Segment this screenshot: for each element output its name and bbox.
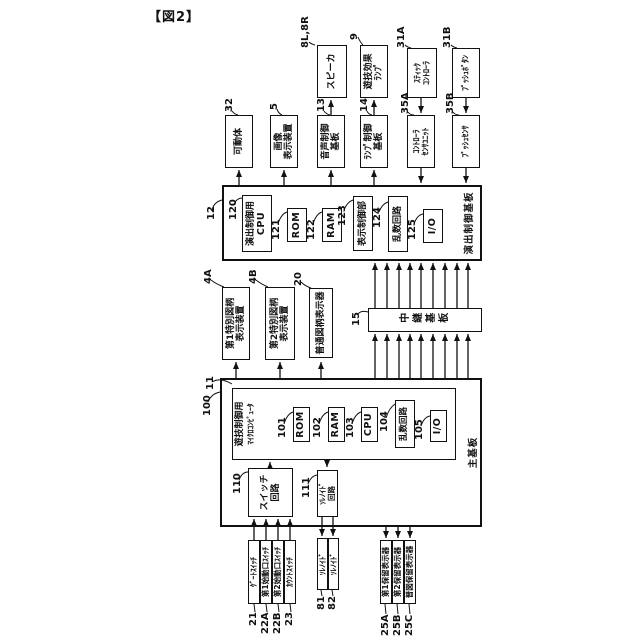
ref-32: 32 <box>224 98 235 112</box>
stick-controller-line2: ｺﾝﾄﾛｰﾗ <box>422 61 431 85</box>
normal-hold-display-label: 普図保留表示器 <box>406 546 414 599</box>
ref-111: 111 <box>301 477 312 498</box>
ref-23: 23 <box>284 612 295 626</box>
normal-hold-display-box: 普図保留表示器 <box>404 540 416 604</box>
start1-switch-label: 第1始動口ｽｲｯﾁ <box>262 547 270 597</box>
ref-101: 101 <box>277 417 288 438</box>
push-button-box: ﾌﾟｯｼｭﾎﾞﾀﾝ <box>452 48 480 98</box>
ref-22B: 22B <box>272 612 283 634</box>
ref-105: 105 <box>414 419 425 440</box>
controller-sensor-line2: ｾﾝｻﾕﾆｯﾄ <box>421 128 430 156</box>
main-ram-box: RAM <box>328 407 345 442</box>
main-io-box: I/O <box>430 410 447 442</box>
game-microcomputer-line2: ﾏｲｸﾛｺﾝﾋﾟｭｰﾀ <box>246 391 255 457</box>
movable-body-box: 可動体 <box>225 115 253 168</box>
ref-4A: 4A <box>203 269 214 284</box>
image-display-box: 画像 表示装置 <box>270 115 298 168</box>
image-display-line1: 画像 <box>274 133 284 151</box>
main-random-box: 乱数回路 <box>395 400 415 448</box>
effect-control-board-label: 演出制御基板 <box>461 185 475 261</box>
ref-103: 103 <box>345 417 356 438</box>
game-microcomputer-label: 遊技制御用 ﾏｲｸﾛｺﾝﾋﾟｭｰﾀ <box>235 391 255 457</box>
ref-120: 120 <box>228 199 239 220</box>
ref-20: 20 <box>293 272 304 286</box>
display-control-label: 表示制御部 <box>358 201 368 246</box>
controller-sensor-unit-box: ｺﾝﾄﾛｰﾗ ｾﾝｻﾕﾆｯﾄ <box>407 115 435 168</box>
ref-25A: 25A <box>380 614 391 636</box>
controller-sensor-line1: ｺﾝﾄﾛｰﾗ <box>412 130 421 154</box>
ref-100: 100 <box>202 395 213 416</box>
special1-line2: 表示装置 <box>236 306 246 342</box>
ref-123: 123 <box>337 205 348 226</box>
ref-22A: 22A <box>260 612 271 634</box>
effect-ram-label: RAM <box>327 212 338 238</box>
effect-lamp-line1: 遊技効果 <box>364 54 374 90</box>
rotated-diagram: 演出制御基板 主基板 遊技制御用 ﾏｲｸﾛｺﾝﾋﾟｭｰﾀ 中継基板 スピーカ 遊… <box>0 0 640 640</box>
push-button-label: ﾌﾟｯｼｭﾎﾞﾀﾝ <box>461 55 470 91</box>
main-cpu-label: CPU <box>364 413 375 436</box>
start1-switch-box: 第1始動口ｽｲｯﾁ <box>260 540 272 604</box>
special2-display-box: 第2特別図柄 表示装置 <box>265 287 295 360</box>
normal-symbol-display-label: 普通図柄表示器 <box>316 292 326 355</box>
ref-121: 121 <box>271 219 282 240</box>
ref-125: 125 <box>407 219 418 240</box>
audio-control-line1: 音声制御 <box>321 124 331 160</box>
speaker-label: スピーカ <box>327 54 337 90</box>
ref-35A: 35A <box>400 92 411 114</box>
main-ram-label: RAM <box>331 412 342 438</box>
hold2-display-box: 第2保留表示器 <box>392 540 404 604</box>
hold1-display-label: 第1保留表示器 <box>382 547 390 597</box>
switch-circuit-line1: スイッチ <box>260 475 270 511</box>
ref-25B: 25B <box>392 614 403 636</box>
push-sensor-box: ﾌﾟｯｼｭｾﾝｻ <box>452 115 480 168</box>
effect-rom-label: ROM <box>292 212 303 238</box>
lamp-control-line2: 基板 <box>374 133 384 151</box>
ref-14: 14 <box>359 98 370 112</box>
audio-control-line2: 基板 <box>331 133 341 151</box>
hold2-display-label: 第2保留表示器 <box>394 547 402 597</box>
ref-102: 102 <box>312 417 323 438</box>
special2-line1: 第2特別図柄 <box>270 298 280 349</box>
normal-symbol-display-box: 普通図柄表示器 <box>309 288 333 358</box>
ref-12: 12 <box>206 206 217 220</box>
solenoid-circuit-line2: 回路 <box>328 486 337 501</box>
speaker-box: スピーカ <box>317 45 347 98</box>
gate-switch-box: ｹﾞｰﾄｽｲｯﾁ <box>248 540 260 604</box>
main-rom-label: ROM <box>296 411 307 437</box>
gate-switch-label: ｹﾞｰﾄｽｲｯﾁ <box>250 557 258 587</box>
relay-board-box: 中継基板 <box>368 308 482 332</box>
effect-cpu-box: 演出制御用 CPU <box>242 195 272 252</box>
special2-line2: 表示装置 <box>280 306 290 342</box>
ref-21: 21 <box>248 612 259 626</box>
effect-random-box: 乱数回路 <box>388 196 408 252</box>
effect-io-label: I/O <box>428 218 439 235</box>
ref-31B: 31B <box>442 26 453 48</box>
effect-lamp-line2: ﾗﾝﾌﾟ <box>374 63 384 81</box>
effect-random-label: 乱数回路 <box>393 206 403 242</box>
ref-9: 9 <box>349 33 360 40</box>
special1-line1: 第1特別図柄 <box>226 298 236 349</box>
switch-circuit-line2: 回路 <box>271 484 281 502</box>
image-display-line2: 表示装置 <box>284 124 294 160</box>
switch-circuit-box: スイッチ 回路 <box>248 468 293 517</box>
special1-display-box: 第1特別図柄 表示装置 <box>222 287 250 360</box>
main-random-label: 乱数回路 <box>400 407 410 441</box>
main-io-label: I/O <box>433 418 444 435</box>
effect-lamp-box: 遊技効果 ﾗﾝﾌﾟ <box>360 45 388 98</box>
ref-81: 81 <box>316 596 327 610</box>
lamp-control-line1: ﾗﾝﾌﾟ制御 <box>364 124 374 160</box>
ref-122: 122 <box>306 219 317 240</box>
ref-124: 124 <box>372 207 383 228</box>
stick-controller-line1: ｽﾃｨｯｸ <box>413 63 422 83</box>
main-rom-box: ROM <box>293 407 310 442</box>
lamp-control-board-box: ﾗﾝﾌﾟ制御 基板 <box>360 115 388 168</box>
relay-board-label: 中継基板 <box>399 314 451 326</box>
ref-15: 15 <box>351 312 362 326</box>
effect-cpu-line2: CPU <box>257 212 268 235</box>
ref-8L8R: 8L,8R <box>300 16 311 48</box>
main-cpu-box: CPU <box>361 407 378 442</box>
display-control-box: 表示制御部 <box>353 196 373 251</box>
ref-110: 110 <box>232 473 243 494</box>
patent-figure: 【図2】 演出制御基板 主基板 遊技制御用 ﾏｲｸﾛｺﾝﾋﾟｭｰﾀ 中継基板 ス… <box>0 0 640 640</box>
ref-25C: 25C <box>404 615 415 636</box>
ref-104: 104 <box>379 411 390 432</box>
ref-35B: 35B <box>445 92 456 114</box>
game-microcomputer-line1: 遊技制御用 <box>235 391 246 457</box>
solenoid81-box: ｿﾚﾉｲﾄﾞ <box>317 538 328 590</box>
stick-controller-box: ｽﾃｨｯｸ ｺﾝﾄﾛｰﾗ <box>407 48 437 98</box>
effect-rom-box: ROM <box>287 208 307 242</box>
ref-11: 11 <box>205 376 216 390</box>
main-board-label: 主基板 <box>465 378 479 527</box>
solenoid81-label: ｿﾚﾉｲﾄﾞ <box>319 553 327 576</box>
start2-switch-label: 第2始動口ｽｲｯﾁ <box>274 547 282 597</box>
solenoid82-box: ｿﾚﾉｲﾄﾞ <box>328 538 339 590</box>
push-sensor-label: ﾌﾟｯｼｭｾﾝｻ <box>461 126 470 158</box>
start2-switch-box: 第2始動口ｽｲｯﾁ <box>272 540 284 604</box>
audio-control-board-box: 音声制御 基板 <box>317 115 345 168</box>
solenoid82-label: ｿﾚﾉｲﾄﾞ <box>330 553 338 576</box>
ref-5: 5 <box>269 103 280 110</box>
movable-body-label: 可動体 <box>234 128 244 155</box>
ref-13: 13 <box>316 98 327 112</box>
hold1-display-box: 第1保留表示器 <box>380 540 392 604</box>
ref-4B: 4B <box>248 269 259 284</box>
effect-io-box: I/O <box>423 209 443 243</box>
ref-82: 82 <box>327 596 338 610</box>
count-switch-box: ｶｳﾝﾄｽｲｯﾁ <box>284 540 296 604</box>
count-switch-label: ｶｳﾝﾄｽｲｯﾁ <box>286 557 294 587</box>
solenoid-circuit-box: ｿﾚﾉｲﾄﾞ 回路 <box>317 470 338 517</box>
ref-31A: 31A <box>396 26 407 48</box>
